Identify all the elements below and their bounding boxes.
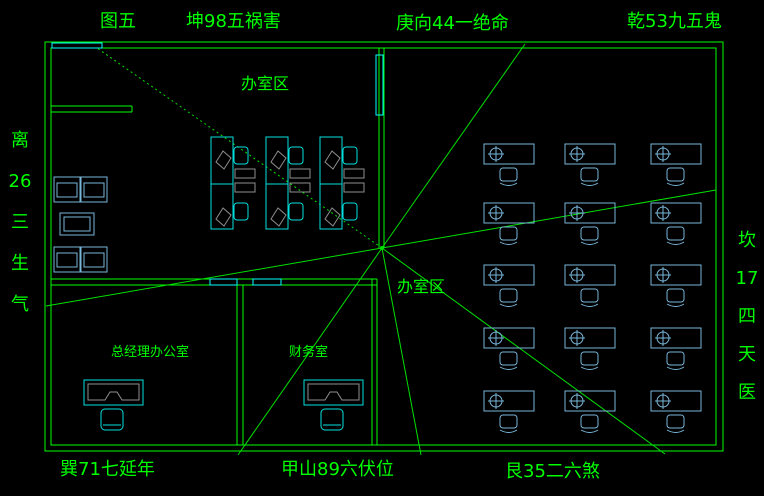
figure-number-label: 图五 bbox=[100, 12, 136, 33]
compass-label-kan: 坎 17 四 天 医 bbox=[731, 222, 763, 412]
room-label-manager-office: 总经理办公室 bbox=[111, 346, 189, 361]
line-kun bbox=[97, 48, 382, 248]
focal-point bbox=[380, 246, 384, 250]
room-label-finance-room: 财务室 bbox=[289, 346, 328, 361]
floorplan-drawing bbox=[0, 0, 764, 496]
line-geng bbox=[382, 44, 525, 248]
window-finance-room bbox=[253, 279, 281, 285]
window-manager-office bbox=[210, 279, 237, 285]
room-label-office-area-center: 办室区 bbox=[397, 278, 445, 296]
compass-label-kun: 坤98五祸害 bbox=[186, 12, 281, 33]
line-li bbox=[46, 248, 382, 306]
windows-and-doors bbox=[52, 43, 383, 285]
line-kan bbox=[382, 190, 716, 248]
compass-label-jiashan: 甲山89六伏位 bbox=[281, 460, 394, 481]
workstation-cluster bbox=[211, 137, 364, 229]
lounge-set bbox=[54, 177, 107, 272]
finance-desk bbox=[304, 380, 363, 430]
compass-label-li: 离 26 三 生 气 bbox=[4, 120, 36, 325]
room-label-office-area-top: 办室区 bbox=[241, 75, 289, 93]
compass-label-qian: 乾53九五鬼 bbox=[627, 12, 722, 33]
compass-label-xun: 巽71七延年 bbox=[60, 460, 155, 481]
cad-floorplan-canvas: 图五 坤98五祸害 庚向44一绝命 乾53九五鬼 离 26 三 生 气 坎 17… bbox=[0, 0, 764, 496]
manager-desk bbox=[84, 380, 143, 430]
compass-label-geng: 庚向44一绝命 bbox=[396, 14, 509, 35]
window-top-left bbox=[52, 43, 102, 48]
coffee-table bbox=[60, 213, 94, 235]
open-office-desk-grid bbox=[484, 144, 701, 433]
compass-label-gen: 艮35二六煞 bbox=[505, 462, 600, 483]
